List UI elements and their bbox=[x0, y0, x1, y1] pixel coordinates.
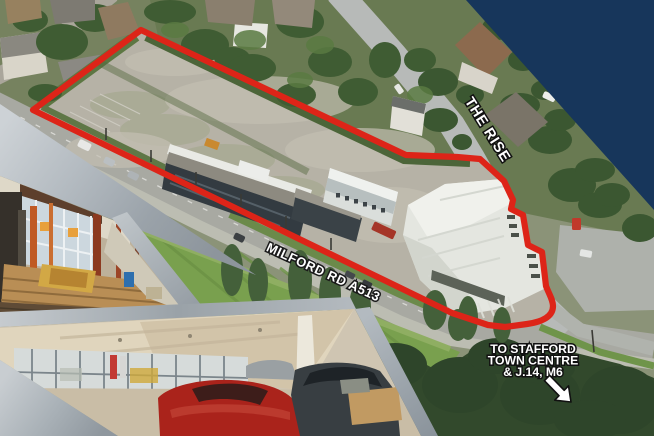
svg-text:& J.14, M6: & J.14, M6 bbox=[503, 365, 563, 379]
